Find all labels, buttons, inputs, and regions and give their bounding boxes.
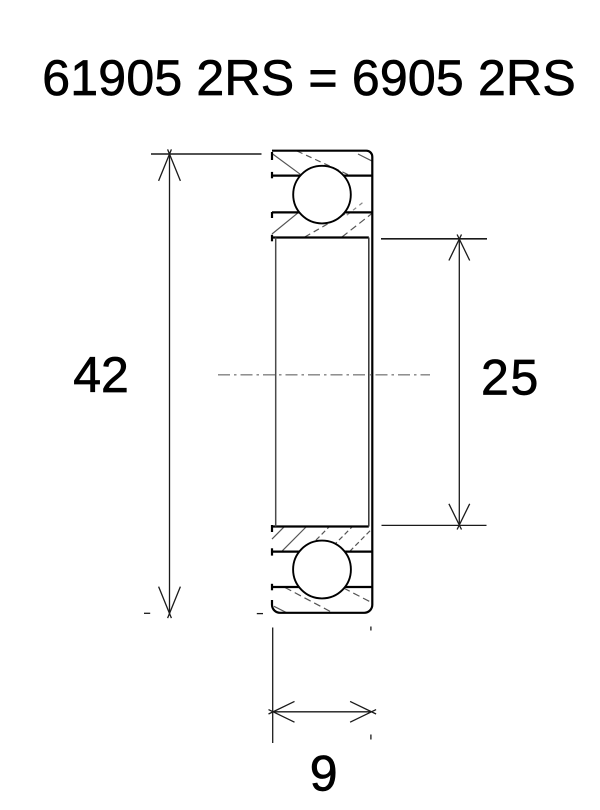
- svg-text:42: 42: [73, 347, 129, 403]
- svg-text:9: 9: [310, 746, 338, 802]
- svg-text:25: 25: [481, 350, 540, 406]
- svg-text:61905 2RS = 6905 2RS: 61905 2RS = 6905 2RS: [42, 50, 576, 106]
